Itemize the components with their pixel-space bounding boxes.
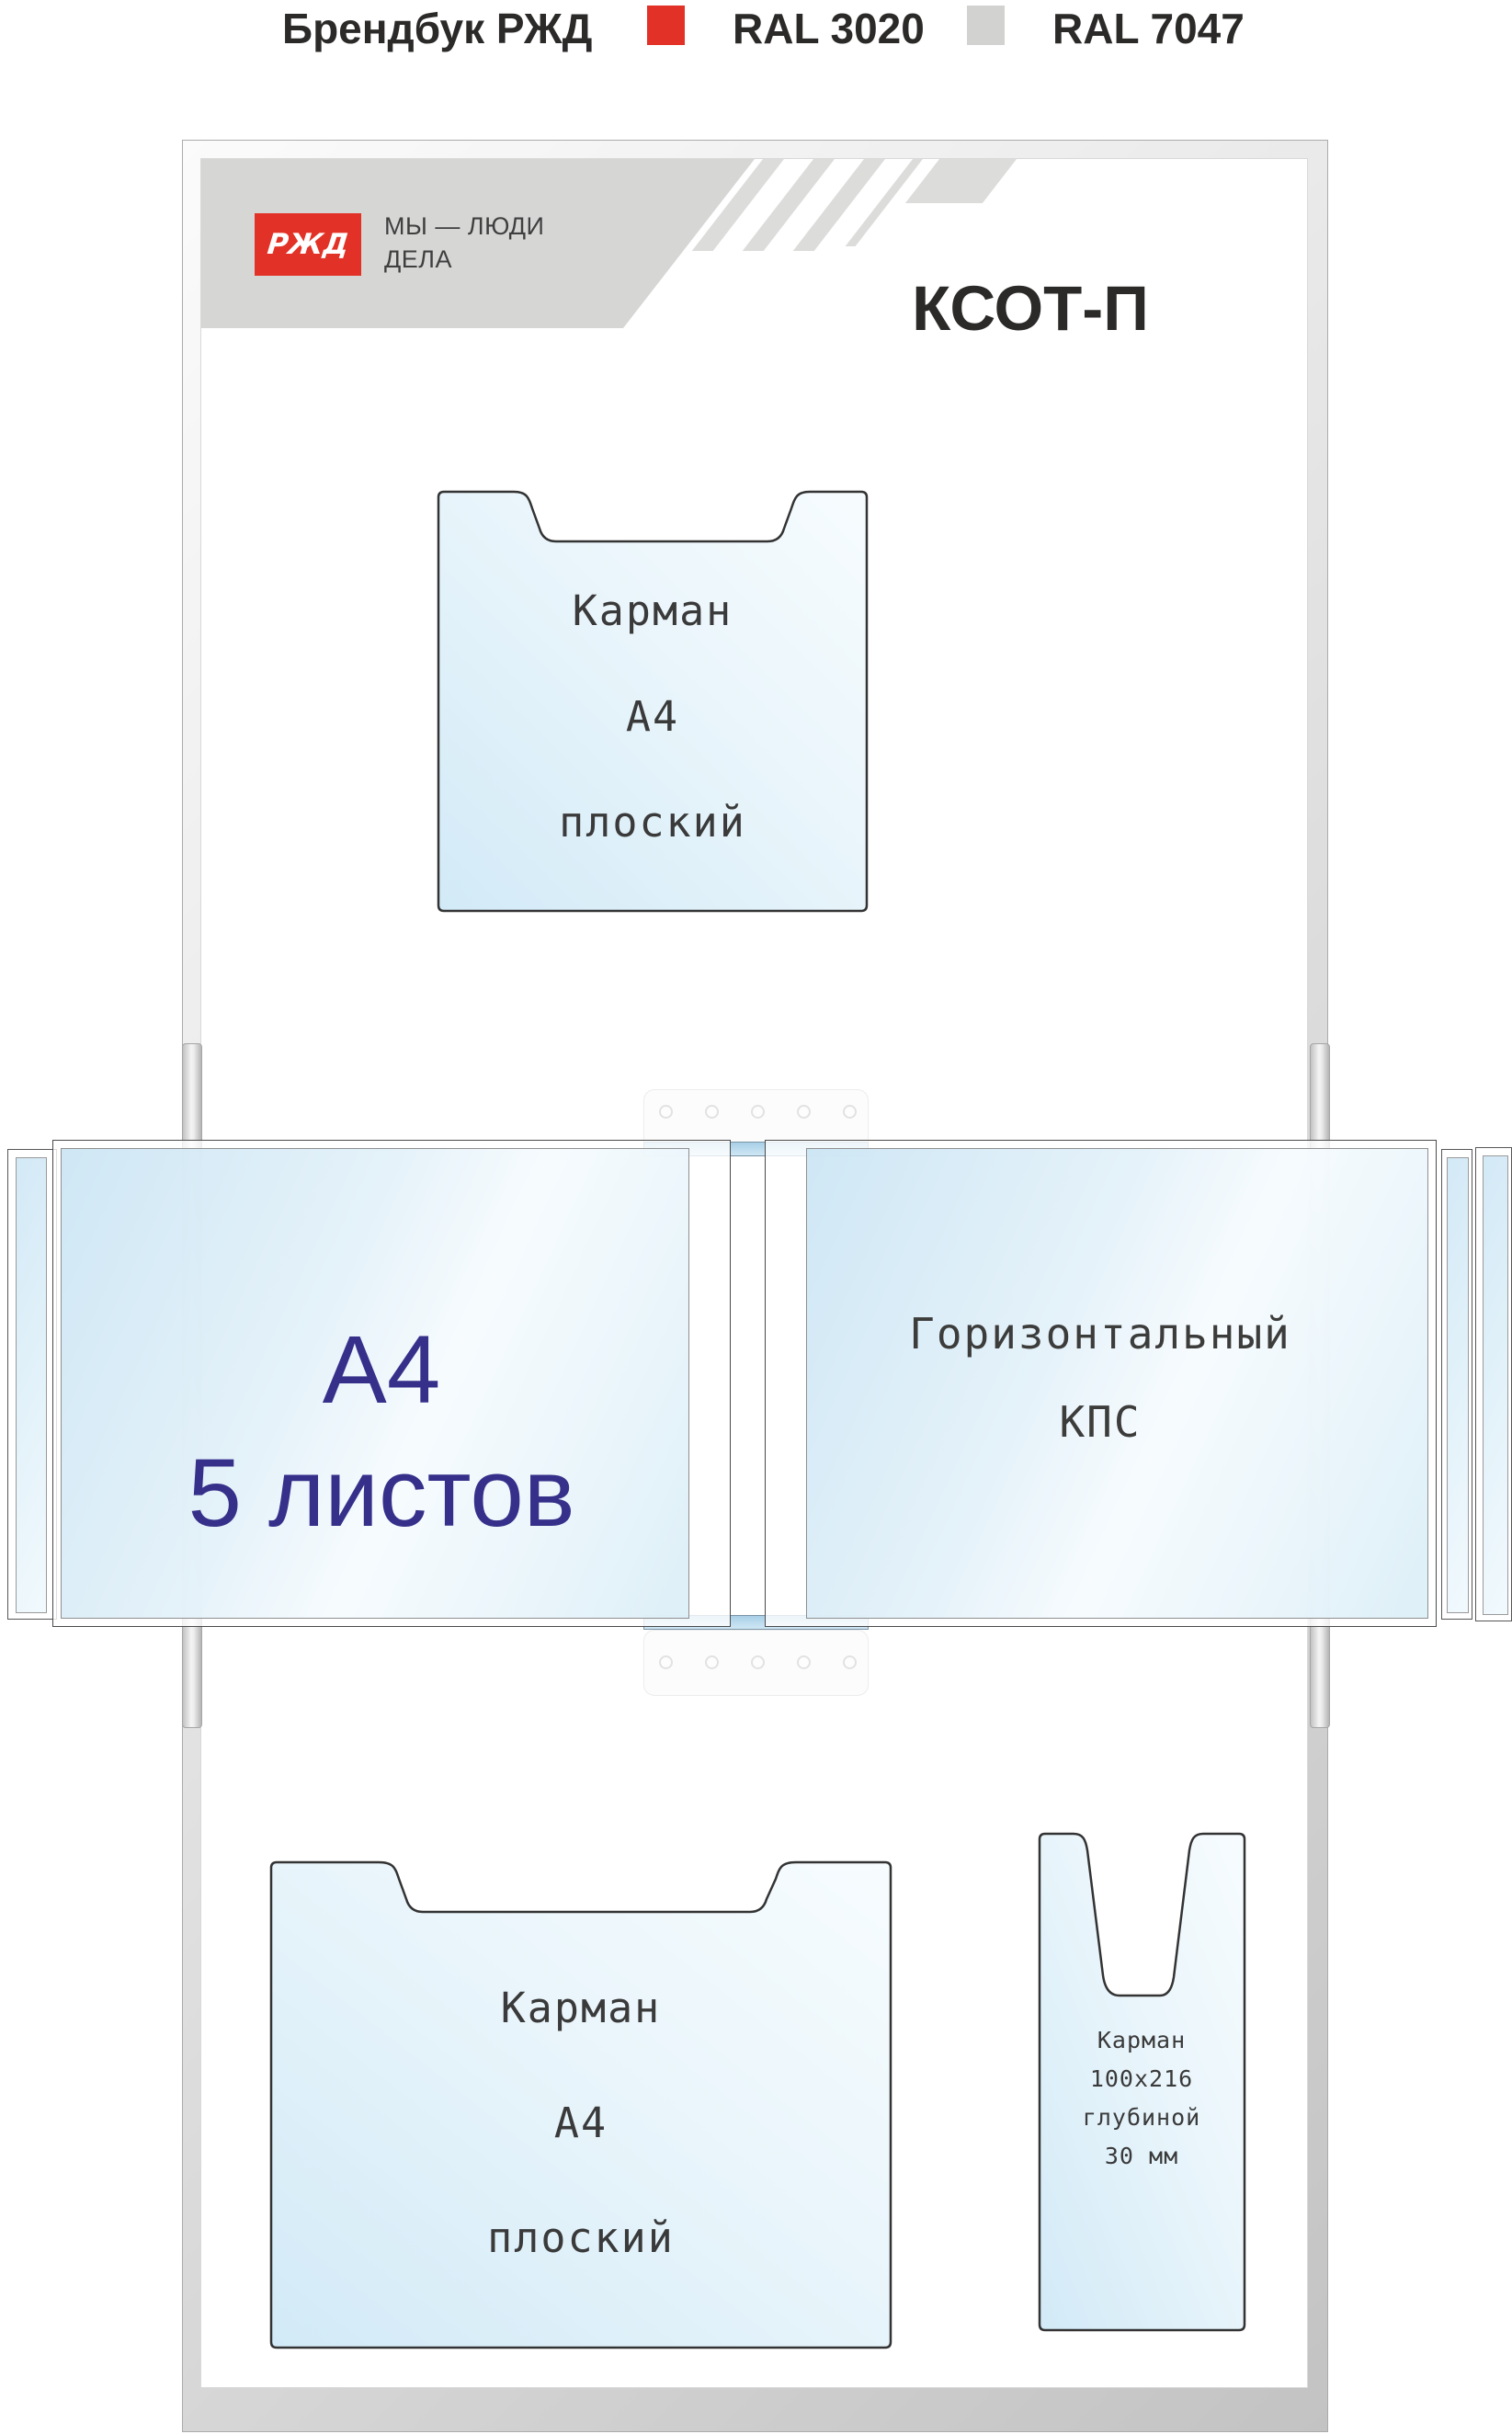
flip-panel-kps-line2: КПС bbox=[1059, 1397, 1141, 1447]
flip-panel-kps-line1: Горизонтальный bbox=[909, 1309, 1291, 1359]
flip-panel-kps[interactable] bbox=[765, 1140, 1437, 1627]
flip-panel-a4-line1: А4 bbox=[323, 1309, 440, 1432]
ral7047-swatch bbox=[967, 6, 1005, 45]
stacked-panel-fill bbox=[1447, 1157, 1469, 1613]
mounting-hole bbox=[659, 1655, 673, 1669]
pocket-top-label-3: плоский bbox=[559, 798, 746, 847]
brandbook-title: Брендбук РЖД bbox=[282, 4, 592, 53]
stacked-panel-right-2[interactable] bbox=[1475, 1147, 1512, 1621]
slogan-line2: ДЕЛА bbox=[384, 243, 544, 276]
slogan-line1: МЫ — ЛЮДИ bbox=[384, 210, 544, 243]
slogan: МЫ — ЛЮДИ ДЕЛА bbox=[384, 210, 544, 276]
ral3020-swatch bbox=[647, 6, 685, 45]
mounting-hole bbox=[705, 1105, 719, 1119]
flip-panel-a4-line2: 5 листов bbox=[188, 1432, 574, 1555]
stacked-panel-fill bbox=[1483, 1155, 1508, 1615]
pocket-narrow-label-4: 30 мм bbox=[1105, 2143, 1178, 2169]
mounting-hole bbox=[751, 1655, 765, 1669]
ral3020-label: RAL 3020 bbox=[733, 4, 925, 53]
stacked-panel-fill bbox=[16, 1157, 47, 1613]
pocket-bottom-label-3: плоский bbox=[487, 2213, 675, 2262]
stacked-panel-right-1[interactable] bbox=[1441, 1149, 1472, 1620]
pocket-narrow-label-2: 100x216 bbox=[1090, 2065, 1193, 2092]
flip-panel-kps-fill bbox=[806, 1148, 1428, 1619]
mounting-plate-bottom bbox=[643, 1630, 869, 1696]
pocket-top-label-2: А4 bbox=[626, 692, 679, 741]
pocket-top-label-1: Карман bbox=[573, 586, 733, 635]
pocket-bottom-label-1: Карман bbox=[501, 1984, 662, 2032]
pocket-narrow-label-3: глубиной bbox=[1083, 2104, 1200, 2131]
pocket-narrow-label-1: Карман bbox=[1097, 2027, 1186, 2053]
mounting-hole bbox=[659, 1105, 673, 1119]
poster-page: Брендбук РЖД RAL 3020 RAL 7047 РЖД МЫ — … bbox=[0, 0, 1512, 2434]
pocket-bottom-label-2: А4 bbox=[554, 2098, 608, 2147]
rzd-logo: РЖД bbox=[255, 213, 361, 276]
rzd-logo-text: РЖД bbox=[266, 228, 350, 261]
ral7047-label: RAL 7047 bbox=[1052, 4, 1245, 53]
mounting-hole bbox=[705, 1655, 719, 1669]
board-title: КСОТ-П bbox=[912, 272, 1149, 345]
mounting-hole bbox=[843, 1105, 857, 1119]
stacked-panel-left[interactable] bbox=[7, 1149, 57, 1620]
mounting-hole bbox=[751, 1105, 765, 1119]
mounting-hole bbox=[797, 1655, 811, 1669]
mounting-hole bbox=[797, 1105, 811, 1119]
mounting-hole bbox=[843, 1655, 857, 1669]
